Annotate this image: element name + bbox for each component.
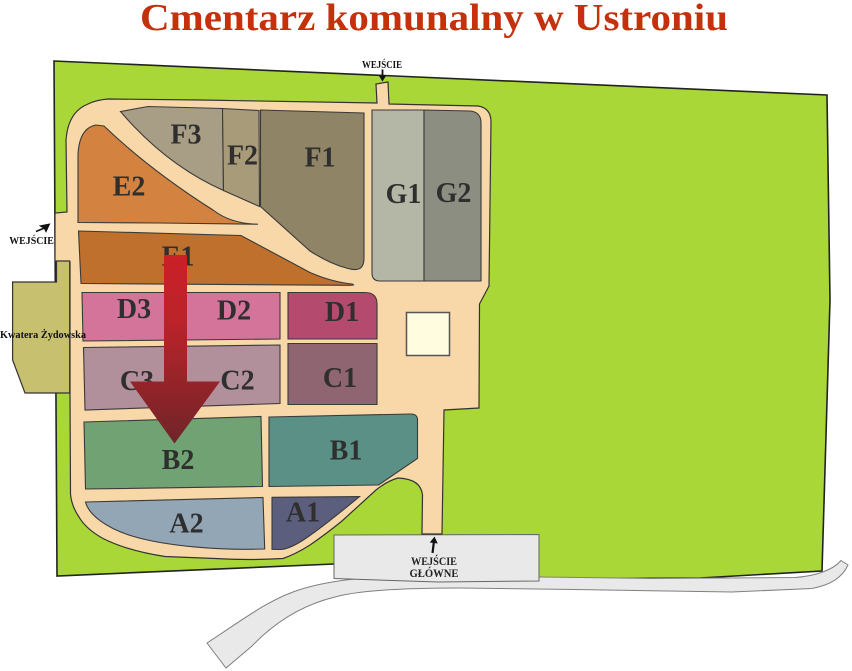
svg-text:WEJŚCIE: WEJŚCIE [362, 59, 402, 71]
svg-text:D1: D1 [325, 297, 359, 328]
svg-text:Cmentarz komunalny w Ustroniu: Cmentarz komunalny w Ustroniu [140, 0, 728, 39]
svg-text:E2: E2 [113, 172, 146, 203]
svg-text:F1: F1 [304, 143, 335, 174]
svg-text:C2: C2 [220, 366, 254, 397]
svg-text:C1: C1 [323, 363, 357, 394]
svg-text:D3: D3 [117, 294, 151, 325]
svg-text:B2: B2 [162, 445, 195, 476]
svg-text:F3: F3 [170, 120, 201, 151]
svg-text:A2: A2 [169, 509, 203, 540]
svg-text:GŁÓWNE: GŁÓWNE [410, 566, 459, 580]
svg-text:G1: G1 [386, 179, 422, 210]
svg-text:B1: B1 [330, 436, 363, 467]
svg-text:D2: D2 [217, 296, 251, 327]
svg-text:Kwatera Żydowska: Kwatera Żydowska [0, 329, 87, 341]
svg-text:F2: F2 [227, 141, 258, 172]
svg-text:A1: A1 [286, 498, 320, 529]
svg-text:WEJŚCIE: WEJŚCIE [9, 235, 54, 247]
svg-text:G2: G2 [436, 178, 472, 209]
